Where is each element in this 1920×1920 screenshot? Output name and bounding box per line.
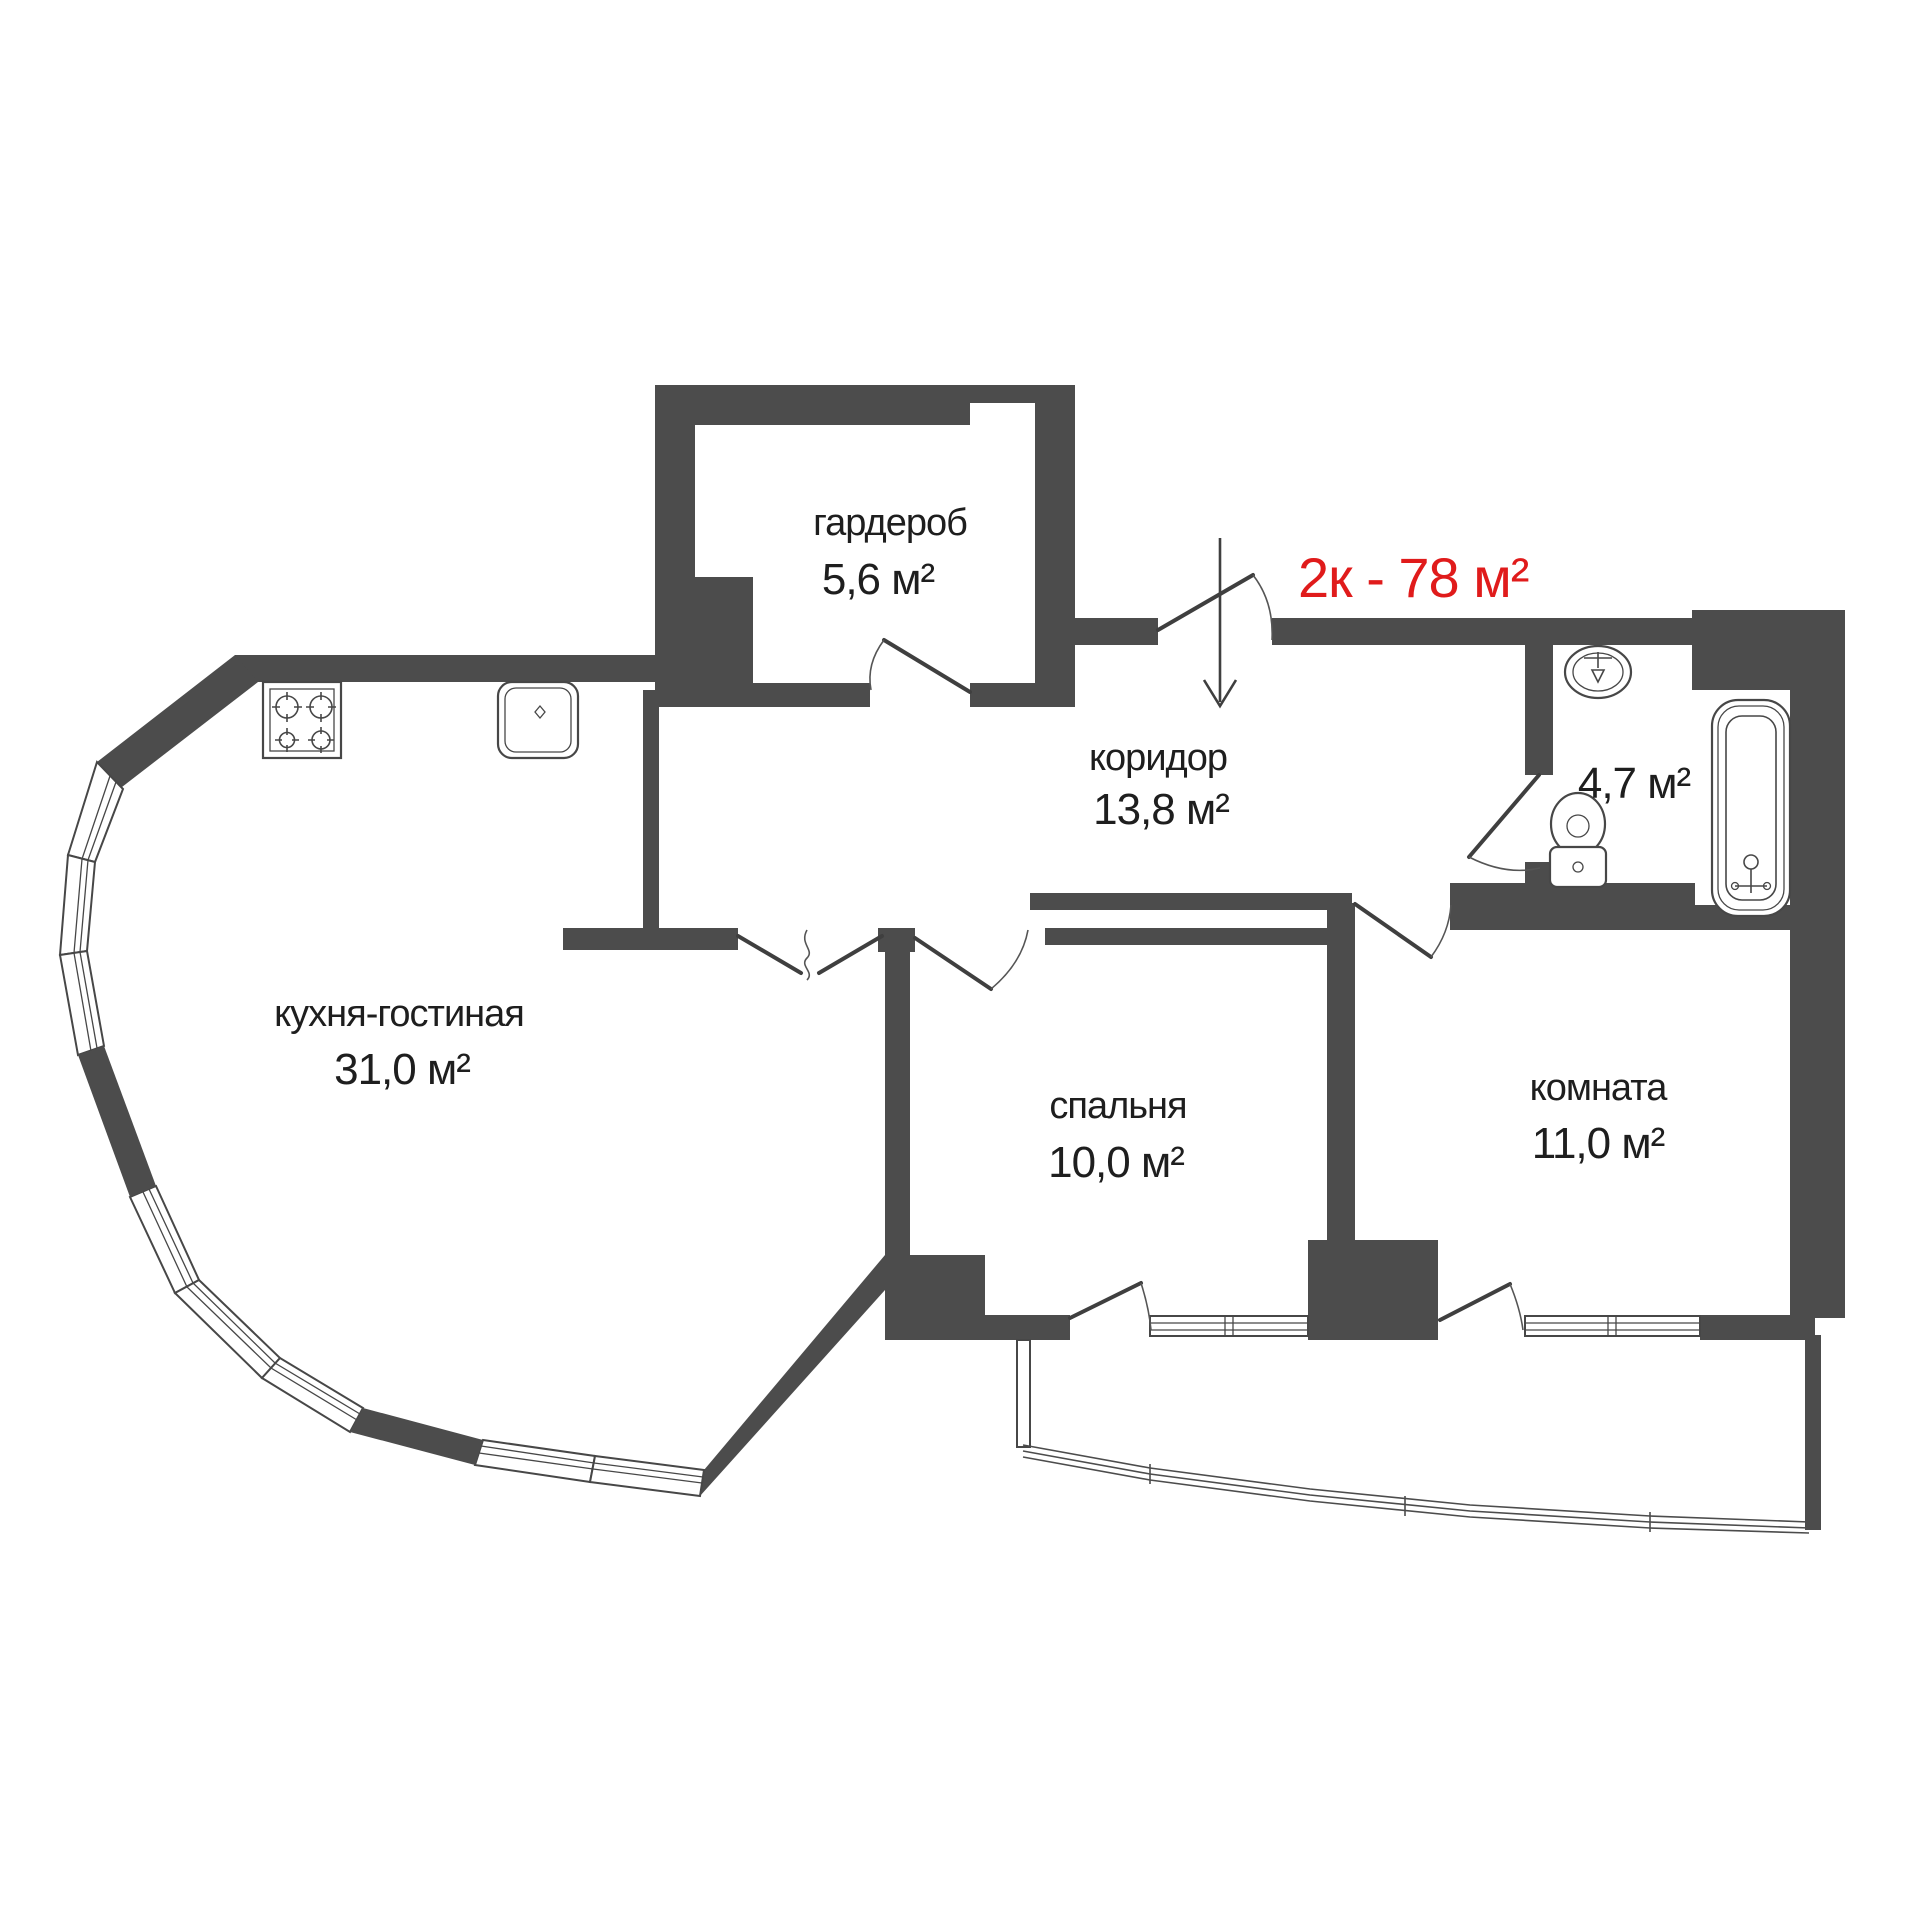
entry-door-leaf: [1158, 575, 1253, 630]
bedroom-label: спальня: [1049, 1085, 1186, 1127]
room-balcony-door-arc: [1510, 1284, 1523, 1330]
plan-title: 2к - 78 м²: [1298, 546, 1529, 609]
wardrobe-right-wall: [1035, 385, 1075, 707]
bedroom-window: [1150, 1316, 1308, 1336]
room-bottom-wall: [1700, 1315, 1815, 1340]
bay-wall-pier: [350, 1408, 483, 1465]
balcony-parapet: [1017, 1340, 1809, 1533]
floor-plan-svg: 2к - 78 м² гардероб 5,6 м² коридор 13,8 …: [0, 0, 1920, 1920]
bathroom-left-wall-upper: [1525, 645, 1553, 775]
bedroom-balcony-door-arc: [1141, 1283, 1151, 1330]
bedroom-left-wall: [885, 928, 910, 1260]
bathroom-door-leaf: [1469, 775, 1539, 857]
kitchen-door-meeting-squiggle: [805, 930, 810, 980]
entry-door-arc: [1253, 575, 1272, 640]
entry-wall-left: [1075, 618, 1158, 645]
kitchen-door-leaf-left: [738, 936, 801, 973]
wardrobe-bottom-wall-left: [655, 683, 870, 707]
kitchen-bottomright-diagonal-wall: [700, 1255, 885, 1496]
kitchen-topleft-diagonal-wall: [97, 655, 258, 787]
kitchen-door-leaf-right: [819, 936, 882, 973]
parapet-line: [1023, 1445, 1809, 1522]
bathtub-icon: [1712, 700, 1790, 916]
window-pier-block: [1308, 1240, 1438, 1340]
bathroom-area: 4,7 м²: [1578, 759, 1691, 808]
bedroom-door-arc: [991, 930, 1028, 989]
kitchen-top-wall: [235, 655, 655, 682]
bedroom-bottomleft-block: [885, 1255, 985, 1340]
kitchen-bay-windows: [60, 762, 704, 1496]
kitchen-living-label: кухня-гостиная: [274, 993, 524, 1035]
washbasin-icon: [1565, 646, 1631, 698]
bedroom-door-leaf: [915, 938, 991, 989]
room-door-arc: [1431, 905, 1451, 957]
wardrobe-bottom-wall-right: [970, 683, 1075, 707]
window-glazing-line: [74, 776, 702, 1483]
bedroom-area: 10,0 м²: [1048, 1138, 1184, 1187]
duct-wall-lower: [1045, 928, 1352, 945]
duct-wall-upper: [1030, 893, 1352, 910]
window-frame: [1150, 1316, 1308, 1336]
bay-wall-pier: [78, 1046, 156, 1197]
wardrobe-corner-block: [655, 577, 753, 687]
wardrobe-wall-notch: [970, 403, 1035, 425]
balcony-side-link: [1017, 1340, 1030, 1447]
room-balcony-door-leaf: [1440, 1284, 1510, 1320]
parapet-line: [1023, 1457, 1809, 1533]
exterior-and-interior-walls: [97, 385, 1845, 1530]
stove-icon: [263, 682, 341, 758]
room-door-leaf: [1355, 904, 1431, 957]
wardrobe-area: 5,6 м²: [822, 555, 935, 604]
top-right-corner-block: [1692, 610, 1845, 690]
kitchen-corridor-divider: [643, 690, 659, 932]
kitchen-living-area: 31,0 м²: [334, 1045, 470, 1094]
window-glazing-line: [80, 782, 703, 1477]
entry-wall-right: [1272, 618, 1692, 645]
wardrobe-door-leaf: [884, 640, 970, 692]
kitchen-sink-icon: [498, 682, 578, 758]
window-segment: [175, 1280, 280, 1378]
bedroom-bottom-wall: [985, 1315, 1070, 1340]
parapet-line: [1023, 1451, 1809, 1528]
room-label: комната: [1530, 1067, 1669, 1109]
bathroom-bottom-wall: [1450, 883, 1695, 930]
room-right-thin-wall: [1805, 1335, 1821, 1530]
floor-plan-page: 2к - 78 м² гардероб 5,6 м² коридор 13,8 …: [0, 0, 1920, 1920]
bedroom-balcony-door-leaf: [1070, 1283, 1141, 1318]
outer-right-wall: [1790, 690, 1845, 1318]
window-frame: [1525, 1316, 1700, 1336]
room-window: [1525, 1316, 1700, 1336]
corridor-label: коридор: [1089, 737, 1227, 779]
window-segment: [262, 1358, 363, 1432]
bedroom-room-divider: [1327, 903, 1355, 1258]
wardrobe-door-arc: [870, 640, 884, 690]
room-area: 11,0 м²: [1532, 1119, 1665, 1168]
wardrobe-label: гардероб: [813, 502, 967, 544]
entry-arrow-icon: [1204, 538, 1236, 706]
kitchen-corridor-bottom-wall: [563, 928, 738, 950]
corridor-area: 13,8 м²: [1093, 785, 1229, 834]
